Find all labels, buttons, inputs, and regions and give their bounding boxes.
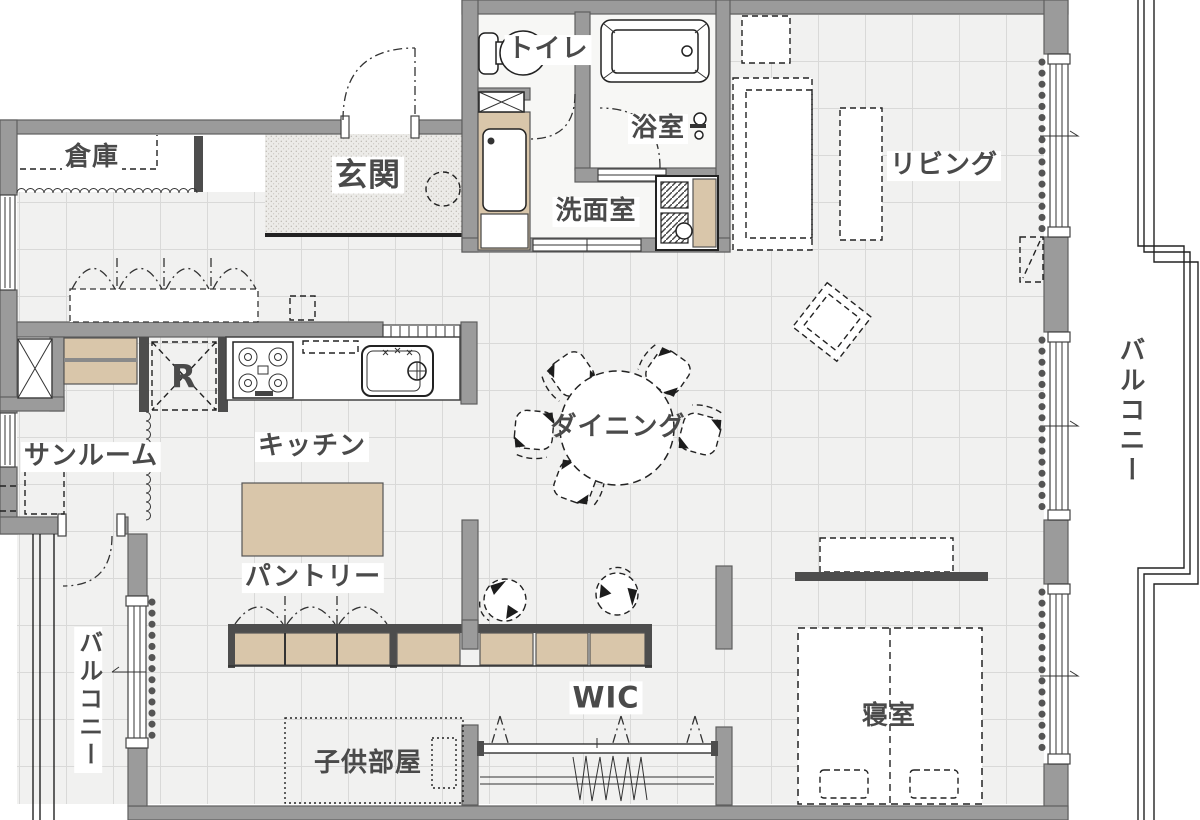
room-label-washroom: 洗面室 <box>552 197 639 227</box>
living-table-outline <box>742 16 790 63</box>
room-label-sunroom: サンルーム <box>21 442 161 472</box>
washroom-shelf <box>479 92 524 112</box>
window-sunroom-upper <box>0 195 15 290</box>
washroom-sliding-door <box>533 239 641 251</box>
duct-shaft <box>18 339 52 398</box>
floor-plan: 倉庫 玄関 トイレ 浴室 洗面室 リビング バルコニー サンルーム キッチン R… <box>0 0 1200 820</box>
room-label-living: リビング <box>887 151 1001 181</box>
tv-board <box>795 572 988 581</box>
window-sunroom-lower <box>0 413 15 467</box>
room-label-bath: 浴室 <box>628 114 688 144</box>
room-label-entrance: 玄関 <box>332 157 404 194</box>
window-bedroom <box>1040 584 1078 764</box>
room-label-dining: ダイニング <box>547 413 688 443</box>
room-label-pantry: パントリー <box>242 563 384 593</box>
balcony-right-railing <box>1138 0 1198 820</box>
room-label-balcony-right: バルコニー <box>1114 333 1144 489</box>
room-label-toilet: トイレ <box>504 35 591 65</box>
washing-machine <box>656 176 718 250</box>
room-label-wic: WIC <box>569 681 642 714</box>
pantry-island <box>242 483 383 556</box>
entrance-door <box>341 48 419 138</box>
window-dining <box>1040 332 1078 520</box>
wall-pier <box>462 620 478 649</box>
room-label-kitchen: キッチン <box>255 432 369 462</box>
living-shelf-outline <box>840 108 882 240</box>
entrance-step <box>265 233 462 237</box>
storage-floor <box>17 134 265 192</box>
window-living <box>1040 54 1078 237</box>
room-label-balcony-left: バルコニー <box>74 627 102 773</box>
room-label-bedroom: 寝室 <box>859 702 919 732</box>
room-label-fridge: R <box>168 359 200 396</box>
stove-icon <box>233 342 293 398</box>
sofa-outline <box>733 78 812 250</box>
room-label-storage: 倉庫 <box>62 143 122 173</box>
tv-outline <box>820 538 953 572</box>
room-label-kids: 子供部屋 <box>311 749 425 779</box>
vanity-sink <box>478 112 530 250</box>
kitchen-sink <box>362 346 433 396</box>
bathtub-icon <box>601 20 709 82</box>
sunroom-shelf <box>64 338 137 384</box>
